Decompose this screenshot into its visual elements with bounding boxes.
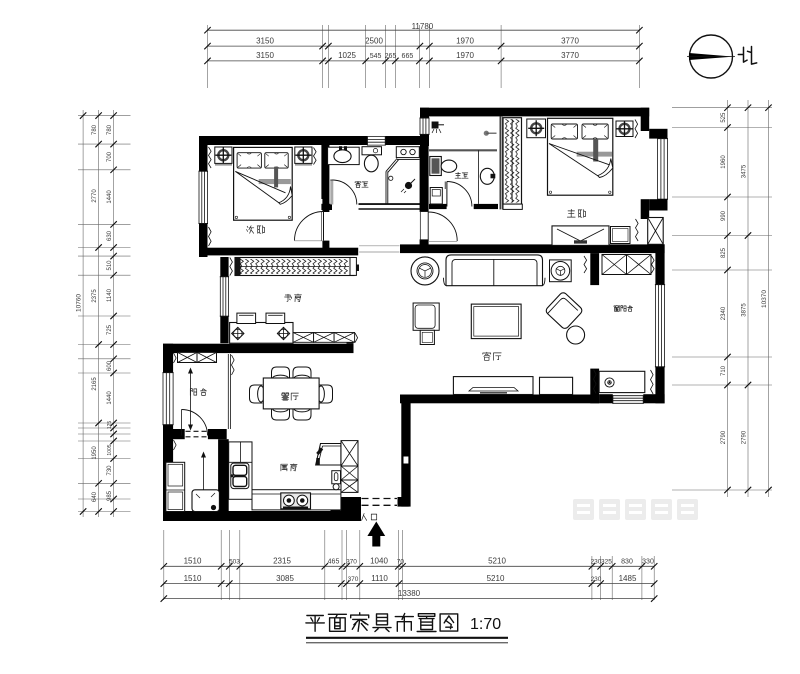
svg-text:370: 370 <box>346 559 357 566</box>
svg-text:3770: 3770 <box>561 51 579 60</box>
svg-text:2165: 2165 <box>92 377 98 391</box>
svg-text:2500: 2500 <box>365 36 383 45</box>
svg-text:325: 325 <box>601 559 612 566</box>
svg-text:370: 370 <box>348 576 359 583</box>
svg-text:1040: 1040 <box>370 557 388 566</box>
svg-text:780: 780 <box>107 124 113 135</box>
svg-text:3150: 3150 <box>256 51 274 60</box>
svg-text:465: 465 <box>328 559 340 566</box>
svg-text:2790: 2790 <box>721 430 727 444</box>
svg-text:3875: 3875 <box>741 303 747 317</box>
svg-text:3475: 3475 <box>741 164 747 178</box>
svg-text:710: 710 <box>721 365 727 376</box>
svg-text:1025: 1025 <box>338 51 356 60</box>
svg-text:830: 830 <box>621 559 633 566</box>
svg-text:230: 230 <box>591 576 602 583</box>
svg-text:3150: 3150 <box>256 36 274 45</box>
svg-text:1485: 1485 <box>619 574 637 583</box>
svg-text:265: 265 <box>385 53 397 60</box>
svg-text:1140: 1140 <box>107 288 113 302</box>
svg-text:10370: 10370 <box>761 290 768 308</box>
svg-text:600: 600 <box>107 360 113 371</box>
svg-text:1970: 1970 <box>456 36 474 45</box>
svg-text:1440: 1440 <box>107 190 113 204</box>
svg-text:665: 665 <box>402 53 414 60</box>
svg-text:1950: 1950 <box>92 446 98 460</box>
svg-text:3770: 3770 <box>561 36 579 45</box>
svg-text:1970: 1970 <box>456 51 474 60</box>
svg-text:630: 630 <box>107 230 113 241</box>
svg-text:2770: 2770 <box>92 189 98 203</box>
svg-text:510: 510 <box>107 260 113 271</box>
svg-text:825: 825 <box>721 247 727 258</box>
svg-text:1960: 1960 <box>721 155 727 169</box>
svg-text:2375: 2375 <box>92 289 98 303</box>
svg-text:503: 503 <box>229 559 240 566</box>
svg-text:640: 640 <box>92 491 98 502</box>
svg-text:11780: 11780 <box>412 22 434 31</box>
svg-text:2340: 2340 <box>721 306 727 320</box>
svg-text:2315: 2315 <box>273 557 291 566</box>
svg-text:5210: 5210 <box>488 557 506 566</box>
svg-text:545: 545 <box>370 53 382 60</box>
svg-text:5210: 5210 <box>487 574 505 583</box>
svg-text:985: 985 <box>107 490 113 501</box>
svg-text:525: 525 <box>721 112 727 123</box>
svg-text:1110: 1110 <box>371 574 388 583</box>
svg-text:725: 725 <box>107 324 113 335</box>
svg-text:3085: 3085 <box>276 574 294 583</box>
svg-text:1510: 1510 <box>184 574 202 583</box>
svg-text:10760: 10760 <box>75 294 82 312</box>
svg-text:1005: 1005 <box>107 444 113 455</box>
svg-text:330: 330 <box>642 559 654 566</box>
svg-text:990: 990 <box>721 210 727 221</box>
svg-text:1510: 1510 <box>184 557 202 566</box>
svg-text:125: 125 <box>107 421 113 430</box>
svg-text:70: 70 <box>397 559 405 566</box>
svg-text:780: 780 <box>92 124 98 135</box>
svg-text:13380: 13380 <box>398 589 421 598</box>
svg-text:1:70: 1:70 <box>470 616 501 633</box>
svg-text:700: 700 <box>107 151 113 162</box>
svg-text:1440: 1440 <box>107 391 113 405</box>
svg-text:2790: 2790 <box>741 430 747 444</box>
svg-text:730: 730 <box>107 465 113 476</box>
